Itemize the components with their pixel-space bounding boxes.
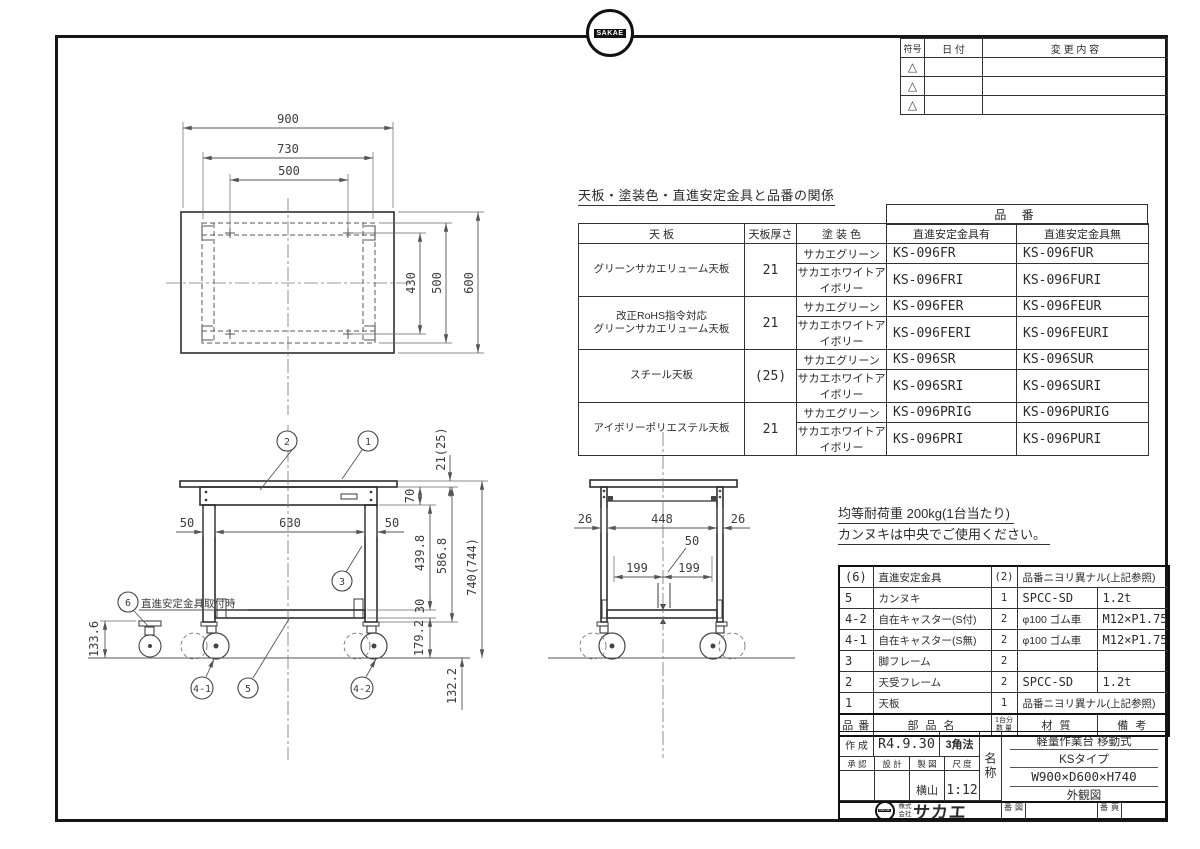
panel-thickness: 21	[745, 244, 797, 297]
revision-change-cell	[983, 58, 1168, 77]
sakae-logo-top: SAKAE	[586, 9, 634, 57]
panel-name: スチール天板	[579, 350, 745, 403]
load-capacity-note: 均等耐荷重 200kg(1台当たり)	[838, 503, 1014, 524]
triangle-icon: △	[901, 58, 925, 77]
parts-list-table: (6) 直進安定金具 (2) 品番ニヨリ異ナル(上記参照) 5 カンヌキ 1 S…	[838, 565, 1170, 737]
dim-50-right: 50	[385, 516, 399, 530]
dim-179-2: 179.2	[412, 620, 426, 656]
dim-500-right: 500	[430, 272, 444, 294]
paint-color: サカエグリーン	[797, 244, 887, 264]
part-no: 4-1	[839, 630, 873, 651]
callout-4-2: 4-2	[353, 684, 371, 695]
part-material: SPCC-SD	[1017, 588, 1097, 609]
dim-70: 70	[403, 489, 417, 503]
created-date: R4.9.30	[874, 732, 940, 757]
part-remark: M12×P1.75	[1097, 609, 1169, 630]
part-no: 4-2	[839, 609, 873, 630]
panel-name: アイボリーポリエステル天板	[579, 403, 745, 456]
revision-date-cell	[925, 58, 983, 77]
paint-color: サカエグリーン	[797, 403, 887, 423]
part-no-with: KS-096FERI	[887, 317, 1017, 350]
dim-199-left: 199	[626, 561, 648, 575]
part-no: 1	[839, 693, 873, 715]
drawing-no-label: 図番	[1002, 801, 1026, 818]
dim-600: 600	[462, 272, 476, 294]
paint-color: サカエグリーン	[797, 350, 887, 370]
part-no: 3	[839, 651, 873, 672]
dim-430: 430	[404, 272, 418, 294]
dim-448: 448	[651, 512, 673, 526]
company-prefix: 株式会社	[898, 803, 913, 817]
part-no-with: KS-096SRI	[887, 370, 1017, 403]
revision-change-cell	[983, 96, 1168, 115]
scale-label: 尺 度	[945, 757, 980, 771]
part-no: (6)	[839, 566, 873, 588]
col-header-panel: 天 板	[579, 224, 745, 244]
panel-thickness: (25)	[745, 350, 797, 403]
company-logo: SAKAE 株式会社 サカエ	[840, 801, 1002, 818]
dim-586-8: 586.8	[435, 538, 449, 574]
dim-50-left: 50	[180, 516, 194, 530]
revision-header-symbol: 符号	[901, 39, 925, 58]
part-no-without: KS-096FUR	[1017, 244, 1149, 264]
dim-730: 730	[277, 142, 299, 156]
product-name-line: 軽量作業台 移動式	[1010, 732, 1158, 750]
product-type-line: KSタイプ	[1010, 750, 1158, 768]
callouts: 2 1 3 4-1 5 4-2 6 直進安定金具取付時	[118, 431, 378, 699]
top-view: 900 730 500 430 500 600	[166, 112, 484, 415]
col-header-thickness: 天板厚さ	[745, 224, 797, 244]
paint-color: サカエホワイトアイボリー	[797, 264, 887, 297]
part-no-without: KS-096SURI	[1017, 370, 1149, 403]
callout-5: 5	[245, 684, 251, 695]
callout-6-note: 直進安定金具取付時	[141, 597, 236, 610]
part-no-with: KS-096FR	[887, 244, 1017, 264]
part-no-without: KS-096FEUR	[1017, 297, 1149, 317]
part-name: 天板	[873, 693, 991, 715]
part-qty: 1	[991, 693, 1017, 715]
part-material: SPCC-SD	[1017, 672, 1097, 693]
part-name: カンヌキ	[873, 588, 991, 609]
name-label: 名称	[980, 732, 1002, 801]
revision-header-date: 日 付	[925, 39, 983, 58]
parts-row: 4-2 自在キャスター(S付) 2 φ100 ゴム車 M12×P1.75	[839, 609, 1169, 630]
part-name: 天受フレーム	[873, 672, 991, 693]
dim-500-top: 500	[278, 164, 300, 178]
page-no-value	[1122, 801, 1166, 818]
part-no-with: KS-096PRIG	[887, 403, 1017, 423]
side-view: 26 448 26 50 199 199	[574, 432, 750, 758]
part-material: 品番ニヨリ異ナル(上記参照)	[1017, 566, 1169, 588]
part-material: 品番ニヨリ異ナル(上記参照)	[1017, 693, 1169, 715]
dim-199-right: 199	[678, 561, 700, 575]
part-material: φ100 ゴム車	[1017, 630, 1097, 651]
callout-6: 6	[125, 598, 131, 609]
callout-1: 1	[365, 437, 371, 448]
part-name: 自在キャスター(S無)	[873, 630, 991, 651]
company-name: サカエ	[911, 798, 968, 823]
part-qty: (2)	[991, 566, 1017, 588]
part-no-without: KS-096PURIG	[1017, 403, 1149, 423]
dim-26-left: 26	[578, 512, 592, 526]
created-label: 作 成	[840, 732, 874, 757]
part-name: 自在キャスター(S付)	[873, 609, 991, 630]
part-number-header: 品 番	[886, 204, 1148, 225]
page-no-label: 頁番	[1098, 801, 1122, 818]
part-no-with: KS-096SR	[887, 350, 1017, 370]
drawing-sheet: 900 730 500 430 500 600	[0, 0, 1200, 849]
part-no-without: KS-096SUR	[1017, 350, 1149, 370]
part-no-with: KS-096FER	[887, 297, 1017, 317]
paint-color: サカエグリーン	[797, 297, 887, 317]
product-table-title: 天板・塗装色・直進安定金具と品番の関係	[578, 185, 835, 206]
part-no-with: KS-096PRI	[887, 423, 1017, 456]
dim-900: 900	[277, 112, 299, 126]
revision-date-cell	[925, 77, 983, 96]
part-qty: 2	[991, 651, 1017, 672]
dim-133-6: 133.6	[87, 621, 101, 657]
callout-4-1: 4-1	[193, 684, 211, 695]
panel-thickness: 21	[745, 403, 797, 456]
scale-value: 1:12	[945, 771, 980, 801]
part-remark: 1.2t	[1097, 588, 1169, 609]
part-material: φ100 ゴム車	[1017, 609, 1097, 630]
drawing-no-value	[1026, 801, 1098, 818]
col-header-without-fitting: 直進安定金具無	[1017, 224, 1149, 244]
dim-630: 630	[279, 516, 301, 530]
paint-color: サカエホワイトアイボリー	[797, 423, 887, 456]
part-qty: 2	[991, 630, 1017, 651]
part-remark	[1097, 651, 1169, 672]
paint-color: サカエホワイトアイボリー	[797, 317, 887, 350]
dim-50-center: 50	[685, 534, 699, 548]
parts-row: 5 カンヌキ 1 SPCC-SD 1.2t	[839, 588, 1169, 609]
revision-date-cell	[925, 96, 983, 115]
part-remark: M12×P1.75	[1097, 630, 1169, 651]
part-qty: 1	[991, 588, 1017, 609]
sakae-badge-icon: SAKAE	[875, 801, 895, 821]
triangle-icon: △	[901, 96, 925, 115]
revision-row: △	[901, 96, 1168, 115]
title-block: 作 成 R4.9.30 3角法 名称 軽量作業台 移動式 KSタイプ W900×…	[838, 731, 1168, 820]
part-no-with: KS-096FRI	[887, 264, 1017, 297]
parts-header-qty-line1: 1台分	[992, 717, 1017, 725]
approval-label: 承 認	[840, 757, 875, 771]
panel-thickness: 21	[745, 297, 797, 350]
dim-740-744: 740(744)	[465, 538, 479, 596]
part-no-without: KS-096FEURI	[1017, 317, 1149, 350]
dim-21-25: 21(25)	[434, 427, 448, 470]
part-no-without: KS-096FURI	[1017, 264, 1149, 297]
parts-row: 2 天受フレーム 2 SPCC-SD 1.2t	[839, 672, 1169, 693]
kannuki-note: カンヌキは中央でご使用ください。	[838, 524, 1050, 545]
draft-value: 横山	[910, 771, 945, 801]
projection-method: 3角法	[940, 732, 980, 757]
revision-header-change: 変 更 内 容	[983, 39, 1168, 58]
part-no: 5	[839, 588, 873, 609]
panel-name: 改正RoHS指令対応 グリーンサカエリューム天板	[579, 297, 745, 350]
col-header-with-fitting: 直進安定金具有	[887, 224, 1017, 244]
callout-2: 2	[284, 437, 290, 448]
part-material	[1017, 651, 1097, 672]
triangle-icon: △	[901, 77, 925, 96]
design-value	[875, 771, 910, 801]
design-label: 設 計	[875, 757, 910, 771]
part-no: 2	[839, 672, 873, 693]
part-remark: 1.2t	[1097, 672, 1169, 693]
revision-row: △	[901, 58, 1168, 77]
front-view: 50 630 50 21(25) 70 439.8 30 179.2 586.8…	[87, 425, 795, 760]
revision-change-cell	[983, 77, 1168, 96]
col-header-color: 塗 装 色	[797, 224, 887, 244]
draft-label: 製 図	[910, 757, 945, 771]
product-table: 天 板 天板厚さ 塗 装 色 直進安定金具有 直進安定金具無 グリーンサカエリュ…	[578, 223, 1149, 456]
approval-value	[840, 771, 875, 801]
sakae-badge-icon: SAKAE	[594, 29, 625, 38]
product-name-lines: 軽量作業台 移動式 KSタイプ W900×D600×H740 外観図	[1002, 732, 1166, 801]
dim-26-right: 26	[731, 512, 745, 526]
panel-name: グリーンサカエリューム天板	[579, 244, 745, 297]
parts-row: (6) 直進安定金具 (2) 品番ニヨリ異ナル(上記参照)	[839, 566, 1169, 588]
dim-132-2: 132.2	[445, 668, 459, 704]
dim-30: 30	[413, 599, 427, 613]
part-name: 直進安定金具	[873, 566, 991, 588]
callout-3: 3	[339, 577, 345, 588]
revision-table: 符号 日 付 変 更 内 容 △ △ △	[900, 38, 1168, 115]
paint-color: サカエホワイトアイボリー	[797, 370, 887, 403]
dim-439-8: 439.8	[413, 535, 427, 571]
parts-row: 4-1 自在キャスター(S無) 2 φ100 ゴム車 M12×P1.75	[839, 630, 1169, 651]
part-qty: 2	[991, 609, 1017, 630]
product-size-line: W900×D600×H740	[1010, 768, 1158, 786]
part-name: 脚フレーム	[873, 651, 991, 672]
parts-row: 1 天板 1 品番ニヨリ異ナル(上記参照)	[839, 693, 1169, 715]
part-no-without: KS-096PURI	[1017, 423, 1149, 456]
revision-row: △	[901, 77, 1168, 96]
part-qty: 2	[991, 672, 1017, 693]
parts-row: 3 脚フレーム 2	[839, 651, 1169, 672]
